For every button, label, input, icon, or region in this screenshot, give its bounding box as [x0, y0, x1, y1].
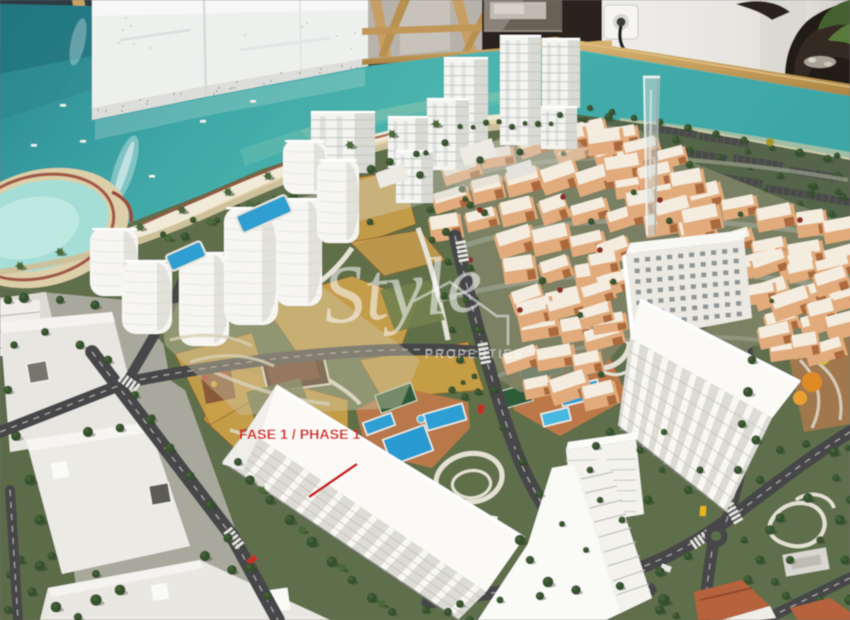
svg-text:FASE 1 / PHASE 1: FASE 1 / PHASE 1 — [239, 427, 361, 443]
svg-text:PROPERTIES: PROPERTIES — [425, 347, 524, 361]
svg-text:Style: Style — [319, 237, 486, 342]
